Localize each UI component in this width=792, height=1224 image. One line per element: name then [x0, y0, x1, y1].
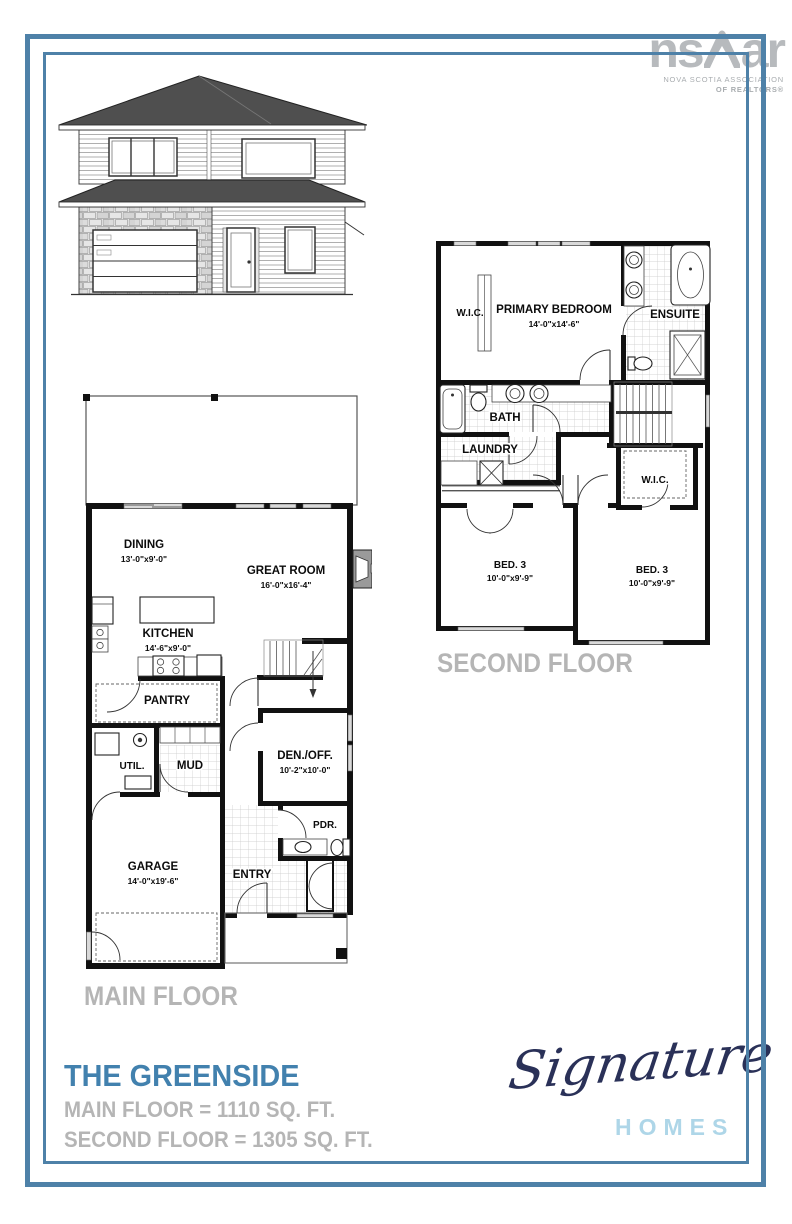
signature-homes-logo: Signature HOMES: [505, 1048, 763, 1168]
room-label-garage: GARAGE: [128, 861, 179, 873]
elevation-lower-roof: [59, 180, 365, 207]
room-label-wic-1: W.I.C.: [456, 308, 483, 319]
room-label-great-room: GREAT ROOM: [247, 565, 325, 577]
upper-left-window: [109, 138, 177, 176]
elevation-upper-roof: [59, 76, 367, 130]
front-elevation-drawing: [57, 72, 367, 300]
porch: [225, 913, 347, 963]
toilet-icon: [470, 385, 487, 411]
room-label-ensuite: ENSUITE: [650, 309, 700, 321]
main-floor-caption: MAIN FLOOR: [84, 981, 238, 1012]
room-dims-garage: 14'-0"x19'-6": [128, 876, 179, 886]
second-floor-caption: SECOND FLOOR: [437, 648, 633, 679]
kitchen-sink-icon: [92, 626, 108, 652]
flyer-page: ns ar NOVA SCOTIA ASSOCIATION OF REALTOR…: [0, 0, 792, 1224]
main-floor-plan: DINING 13'-0"x9'-0" GREAT ROOM 16'-0"x16…: [80, 393, 372, 977]
stove-icon: [153, 656, 184, 676]
plan-name-title: THE GREENSIDE: [64, 1058, 299, 1094]
nsar-letters-ns: ns: [648, 28, 702, 72]
dishwasher-icon: [197, 655, 221, 676]
room-dims-kitchen: 14'-6"x9'-0": [145, 643, 191, 653]
upper-right-window: [242, 139, 315, 178]
stair-direction-arrow: [310, 689, 317, 698]
signature-script-text: Signature: [505, 1024, 777, 1102]
second-floor-plan: W.I.C. PRIMARY BEDROOM 14'-0"x14'-6" ENS…: [432, 239, 714, 651]
shower-icon: [670, 331, 705, 379]
garage-door: [93, 230, 197, 292]
room-dims-den-office: 10'-2"x10'-0": [280, 765, 331, 775]
tub-icon: [671, 245, 710, 305]
laundry-counter: [441, 461, 477, 485]
room-label-pantry: PANTRY: [144, 695, 190, 707]
nsar-caption-1: NOVA SCOTIA ASSOCIATION: [616, 75, 784, 84]
entry-closet: [307, 860, 333, 911]
room-label-pdr: PDR.: [313, 820, 337, 831]
nsar-wordmark: ns ar: [616, 20, 784, 72]
room-label-primary-bedroom: PRIMARY BEDROOM: [496, 304, 612, 316]
room-label-wic-2: W.I.C.: [641, 475, 668, 486]
fireplace-icon: [353, 550, 372, 588]
fridge-icon: [92, 597, 113, 624]
main-floor-area-text: MAIN FLOOR = 1110 SQ. FT.: [64, 1097, 335, 1123]
mud-lockers: [160, 727, 220, 743]
porch-post: [336, 948, 347, 959]
laundry-fixtures: [441, 461, 503, 485]
side-porch-roof-line: [345, 222, 364, 235]
washer-icon: [480, 461, 503, 485]
nsar-letters-ar: ar: [741, 28, 784, 72]
stairs: [614, 382, 672, 446]
room-label-den-office: DEN./OFF.: [277, 750, 333, 762]
room-dims-great-room: 16'-0"x16'-4": [261, 580, 312, 590]
washer-icon: [95, 733, 119, 755]
room-label-dining: DINING: [124, 539, 164, 551]
room-label-util: UTIL.: [120, 761, 145, 772]
powder-room-fixtures: [283, 839, 350, 856]
deck: [83, 394, 357, 505]
elevation-first-storey: [79, 207, 364, 294]
room-dims-primary-bedroom: 14'-0"x14'-6": [529, 319, 580, 329]
room-label-bath: BATH: [489, 412, 520, 424]
sink-icon: [295, 842, 311, 853]
room-label-entry: ENTRY: [233, 869, 272, 881]
tub-icon: [440, 385, 465, 433]
room-dims-bed3-right: 10'-0"x9'-9": [629, 578, 675, 588]
nsar-house-icon: [704, 28, 740, 68]
room-label-laundry: LAUNDRY: [462, 444, 518, 456]
nsar-logo: ns ar NOVA SCOTIA ASSOCIATION OF REALTOR…: [616, 20, 784, 94]
elevation-second-storey: [79, 130, 345, 184]
second-floor-area-text: SECOND FLOOR = 1305 SQ. FT.: [64, 1127, 373, 1153]
kitchen-island: [140, 597, 214, 623]
stairs: [264, 640, 323, 698]
garage-door-dashed: [96, 913, 217, 961]
room-dims-bed3-left: 10'-0"x9'-9": [487, 573, 533, 583]
room-label-bed3-left: BED. 3: [494, 560, 527, 571]
room-label-mud: MUD: [177, 760, 203, 772]
laundry-tub-icon: [125, 776, 151, 789]
stair-rail: [616, 411, 672, 414]
room-label-bed3-right: BED. 3: [636, 565, 669, 576]
room-dims-dining: 13'-0"x9'-0": [121, 554, 167, 564]
front-entry-door: [223, 228, 259, 292]
signature-homes-text: HOMES: [615, 1114, 734, 1141]
nsar-caption-2: OF REALTORS®: [616, 85, 784, 94]
toilet-icon: [331, 839, 350, 856]
room-label-kitchen: KITCHEN: [142, 628, 193, 640]
first-floor-window: [285, 227, 315, 273]
toilet-icon: [628, 357, 652, 370]
